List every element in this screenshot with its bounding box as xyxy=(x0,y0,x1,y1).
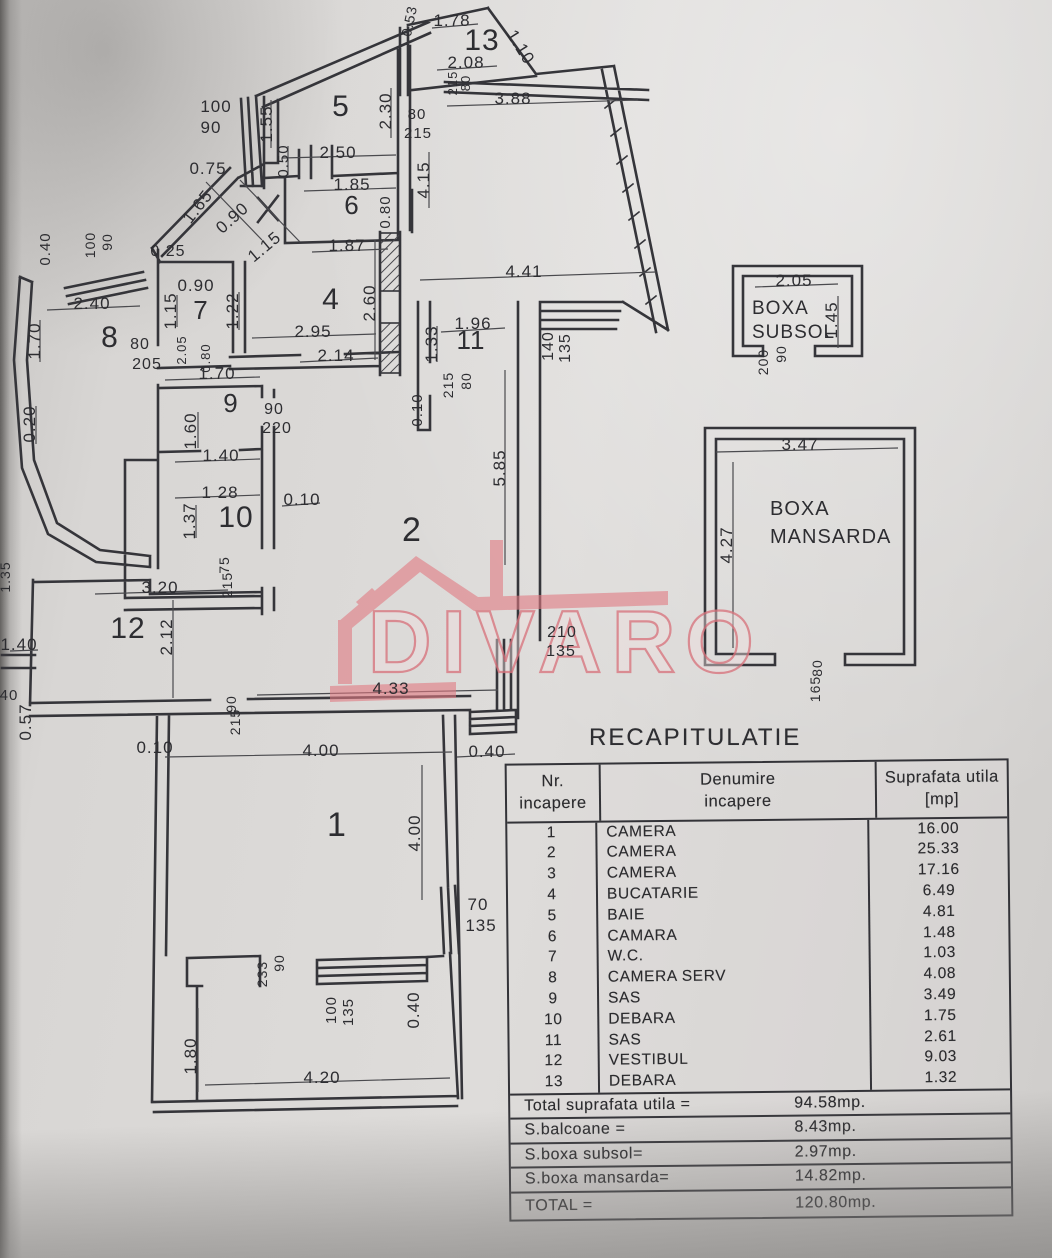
dimension-label: 3.88 xyxy=(494,89,531,108)
recap-col-suprafata: 16.0025.3317.166.494.811.481.034.083.491… xyxy=(869,818,1010,1090)
row-nr: 6 xyxy=(508,926,596,948)
dimension-label: 7 xyxy=(193,295,208,325)
row-area: 2.61 xyxy=(871,1026,1009,1048)
dimension-label: 2.05 xyxy=(174,335,189,364)
recap-col-nr: 12345678910111213 xyxy=(507,822,600,1093)
dimension-label: 2.08 xyxy=(447,53,484,72)
dimension-label: 215 xyxy=(227,709,243,735)
header-denumire-line2: incapere xyxy=(704,792,771,811)
dimension-label: 75 xyxy=(216,556,232,574)
totals-value: 8.43mp. xyxy=(794,1116,856,1139)
recap-title: RECAPITULATIE xyxy=(589,724,1011,752)
row-name: VESTIBUL xyxy=(600,1048,870,1072)
row-nr: 5 xyxy=(508,905,596,927)
dimension-label: 0.90 xyxy=(212,198,252,237)
row-name: BUCATARIE xyxy=(598,882,868,906)
totals-label: Total suprafata utila = xyxy=(510,1093,794,1118)
header-denumire-line1: Denumire xyxy=(700,770,776,789)
scanned-floor-plan-page: DIVARO 100900.40901000.250.751.650.901.1… xyxy=(0,0,1052,1258)
divaro-watermark: DIVARO xyxy=(330,540,764,702)
dimension-label: 2.05 xyxy=(775,271,812,290)
totals-label: S.balcoane = xyxy=(510,1117,794,1142)
dimension-label: 2.50 xyxy=(319,143,356,162)
dimension-label: 0.10 xyxy=(409,393,426,426)
dimension-label: 100 xyxy=(82,232,98,258)
recap-totals: Total suprafata utila =94.58mp.S.balcoan… xyxy=(510,1088,1011,1219)
row-nr: 8 xyxy=(509,968,597,990)
dimension-label: 3.20 xyxy=(141,578,178,597)
row-name: W.C. xyxy=(599,944,869,968)
row-area: 4.08 xyxy=(871,963,1009,985)
recap-body: 12345678910111213 CAMERACAMERACAMERABUCA… xyxy=(507,818,1010,1094)
dimension-label: 5.85 xyxy=(490,449,509,486)
dimension-label: 80 xyxy=(458,372,474,390)
dimension-label: 10 xyxy=(218,501,253,534)
dimension-label: 4.33 xyxy=(372,679,409,698)
totals-value: 14.82mp. xyxy=(795,1165,867,1188)
dimension-label: 90 xyxy=(773,345,789,363)
dimension-label: 2.60 xyxy=(360,284,379,321)
totals-value: 2.97mp. xyxy=(795,1141,857,1164)
dimension-label: 11 xyxy=(457,325,486,355)
dimension-label: 0.40 xyxy=(468,742,505,761)
row-name: CAMARA xyxy=(598,923,868,947)
dimension-label: 205 xyxy=(132,356,162,373)
row-name: CAMERA xyxy=(598,861,868,885)
row-area: 1.48 xyxy=(870,922,1008,944)
totals-label: S.boxa subsol= xyxy=(511,1142,795,1167)
flue-hatch-lower xyxy=(380,323,400,373)
row-nr: 2 xyxy=(507,843,595,865)
dimension-label: 1.55 xyxy=(257,105,276,142)
dimension-label: 0.25 xyxy=(150,243,185,260)
dimension-label: 1.15 xyxy=(244,228,285,266)
dimension-label: 90 xyxy=(201,118,222,137)
dimension-label: 1.60 xyxy=(181,412,200,449)
dimension-label: 0.40 xyxy=(404,991,423,1028)
header-nr-line1: Nr. xyxy=(541,772,564,790)
dimension-label: 8 xyxy=(101,321,119,354)
dimension-label: SUBSOL xyxy=(752,322,835,343)
totals-value: 120.80mp. xyxy=(795,1190,876,1217)
header-nr-line2: incapere xyxy=(519,794,586,813)
dimension-label: 0.10 xyxy=(136,738,173,757)
dimension-label: 2.95 xyxy=(294,322,331,341)
dimension-label: BOXA xyxy=(770,498,830,520)
dimension-label: 0.50 xyxy=(275,144,292,177)
row-nr: 4 xyxy=(508,885,596,907)
row-nr: 10 xyxy=(509,1009,597,1031)
dimension-label: 1.37 xyxy=(180,502,199,539)
dimension-label: 70 xyxy=(468,895,489,914)
dimension-label: 1.80 xyxy=(181,1037,200,1074)
dimension-label: 4.00 xyxy=(302,741,339,760)
row-name: CAMERA xyxy=(597,840,867,864)
dimension-label: 1.22 xyxy=(223,292,242,329)
header-suprafata-line2: [mp] xyxy=(925,790,959,808)
dimension-label: 215 xyxy=(440,372,456,398)
flue-hatch-upper xyxy=(380,233,400,291)
row-area: 3.49 xyxy=(871,984,1009,1006)
dimension-label: 4 xyxy=(322,283,340,316)
dimension-label: 0.90 xyxy=(177,276,214,295)
dimension-label: 0.10 xyxy=(283,490,320,509)
row-name: BAIE xyxy=(598,903,868,927)
dimension-label: 4.27 xyxy=(717,526,736,563)
dimension-label: 1.10 xyxy=(503,26,539,68)
dimension-label: 140 xyxy=(540,331,557,361)
row-area: 6.49 xyxy=(870,880,1008,902)
dimension-label: 215 xyxy=(219,572,235,598)
dimension-label: 3.47 xyxy=(781,435,818,454)
dimension-label: 135 xyxy=(465,916,496,935)
dimension-label: 0.53 xyxy=(398,4,420,38)
row-nr: 7 xyxy=(509,947,597,969)
recap-header-denumire: Denumire incapere xyxy=(601,762,878,820)
watermark-text: DIVARO xyxy=(368,592,764,691)
row-name: CAMERA xyxy=(597,819,867,843)
dimension-label: 135 xyxy=(340,998,357,1026)
row-nr: 9 xyxy=(509,989,597,1011)
dimension-label: 1.87 xyxy=(328,236,365,255)
dimension-label: BOXA xyxy=(752,298,809,319)
dimension-label: MANSARDA xyxy=(770,526,891,548)
recap-header-row: Nr. incapere Denumire incapere Suprafata… xyxy=(507,760,1008,823)
dimension-label: 233 xyxy=(254,961,270,987)
recap-header-suprafata: Suprafata utila [mp] xyxy=(877,760,1008,817)
row-area: 17.16 xyxy=(870,860,1008,882)
dimension-label: 165 xyxy=(807,676,823,702)
dimension-label: 215 xyxy=(404,125,432,142)
row-name: DEBARA xyxy=(599,1007,869,1031)
dimension-label: 1.40 xyxy=(202,446,239,465)
dimension-label: 4.20 xyxy=(303,1068,340,1087)
recap-section: RECAPITULATIE Nr. incapere Denumire inca… xyxy=(507,724,1011,1219)
dimension-label: 9 xyxy=(223,388,238,418)
totals-label: S.boxa mansarda= xyxy=(511,1166,795,1191)
row-nr: 1 xyxy=(507,822,595,844)
dimension-label: 1 28 xyxy=(201,483,238,502)
recap-col-denumire: CAMERACAMERACAMERABUCATARIEBAIECAMARAW.C… xyxy=(597,819,872,1092)
row-name: SAS xyxy=(599,1027,869,1051)
dimension-label: 0.75 xyxy=(189,159,226,178)
dimension-label: 1 xyxy=(327,806,347,844)
dimension-label: 4.41 xyxy=(505,262,542,281)
dimension-label: 0.80 xyxy=(377,195,394,228)
dimension-label: 0.20 xyxy=(20,405,39,442)
dimension-label: 210 xyxy=(547,624,577,641)
dimension-label: 200 xyxy=(755,349,771,375)
row-name: SAS xyxy=(599,986,869,1010)
dimension-label: 1.15 xyxy=(161,292,180,329)
dimension-label: 135 xyxy=(546,643,576,660)
dimension-label: 220 xyxy=(262,420,292,437)
dimension-label: 1.70 xyxy=(25,322,44,359)
row-area: 4.81 xyxy=(870,901,1008,923)
row-area: 1.75 xyxy=(871,1005,1009,1027)
dimension-label: 4.15 xyxy=(414,161,433,198)
dimension-label: 4.00 xyxy=(405,814,424,851)
dimension-label: 90 xyxy=(271,954,287,972)
totals-row: TOTAL =120.80mp. xyxy=(511,1188,1011,1219)
dimension-label: 2.12 xyxy=(157,618,176,655)
totals-label: TOTAL = xyxy=(511,1191,795,1220)
dimension-label: 5 xyxy=(332,90,350,123)
dimension-label: 2.40 xyxy=(73,294,110,313)
dimension-label: 2.30 xyxy=(376,92,395,129)
dimension-label: 1.40 xyxy=(0,635,37,654)
recap-table: Nr. incapere Denumire incapere Suprafata… xyxy=(505,758,1014,1221)
dimension-label: 90 xyxy=(99,233,115,251)
row-nr: 12 xyxy=(510,1051,598,1073)
row-area: 25.33 xyxy=(869,839,1007,861)
row-nr: 3 xyxy=(508,864,596,886)
dimension-label: 80 xyxy=(408,106,427,123)
dimension-label: 0.40 xyxy=(37,232,54,265)
row-name: CAMERA SERV xyxy=(599,965,869,989)
dimension-label: 80 xyxy=(130,336,150,353)
header-suprafata-line1: Suprafata utila xyxy=(885,767,999,786)
dimension-label: 1.33 xyxy=(422,325,441,362)
row-area: 16.00 xyxy=(869,818,1007,840)
dimension-label: 1.70 xyxy=(198,364,235,383)
dimension-label: 40 xyxy=(0,687,18,704)
row-name: DEBARA xyxy=(600,1069,870,1093)
dimension-label: 100 xyxy=(200,97,231,116)
dimension-label: 12 xyxy=(110,612,145,645)
row-area: 1.03 xyxy=(871,943,1009,965)
dimension-label: 6 xyxy=(344,190,359,220)
dimension-label: 90 xyxy=(264,401,284,418)
row-nr: 13 xyxy=(510,1072,598,1094)
recap-header-nr: Nr. incapere xyxy=(507,765,602,822)
dimension-label: 135 xyxy=(557,333,574,363)
row-area: 9.03 xyxy=(872,1047,1010,1069)
dimension-label: 2 xyxy=(402,511,422,549)
dimension-label: 80 xyxy=(809,659,825,677)
dimension-label: 80 xyxy=(458,75,473,91)
totals-value: 94.58mp. xyxy=(794,1092,866,1115)
dimension-label: 1.35 xyxy=(0,561,13,592)
dimension-label: 100 xyxy=(323,996,340,1024)
row-area: 1.32 xyxy=(872,1067,1010,1089)
row-nr: 11 xyxy=(509,1030,597,1052)
dimension-label: 0.57 xyxy=(16,703,35,740)
dimension-label: 2.14 xyxy=(317,346,354,365)
